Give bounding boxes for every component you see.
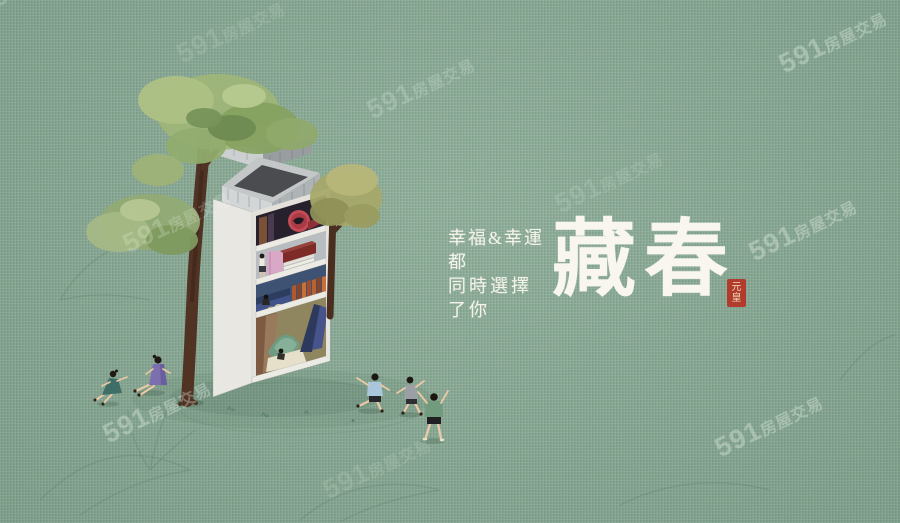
poster-canvas: 幸福&幸運 都 同時選擇 了你 藏春 元皇 591房屋交易 591房屋交易 59…: [0, 0, 900, 523]
side-wall: [213, 199, 252, 397]
tagline: 幸福&幸運 都 同時選擇 了你: [448, 226, 544, 322]
poster-title: 藏春: [552, 219, 736, 303]
tagline-line-1: 幸福&幸運: [448, 226, 544, 250]
tagline-line-3: 同時選擇: [448, 274, 544, 298]
tagline-line-4: 了你: [448, 298, 544, 322]
seal-stamp: 元皇: [727, 279, 746, 307]
tagline-line-2: 都: [448, 250, 544, 274]
